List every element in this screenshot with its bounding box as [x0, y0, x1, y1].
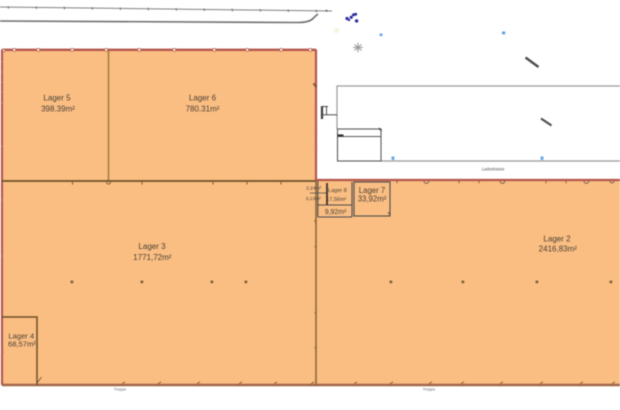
- svg-text:Lager 5: Lager 5: [43, 94, 71, 103]
- svg-text:68,57m²: 68,57m²: [8, 340, 36, 349]
- svg-text:Lager 3: Lager 3: [138, 242, 166, 251]
- svg-text:9,92m²: 9,92m²: [325, 209, 347, 216]
- svg-text:33,92m²: 33,92m²: [358, 194, 387, 203]
- svg-text:398.39m²: 398.39m²: [41, 105, 75, 114]
- svg-text:2,24m²: 2,24m²: [306, 185, 322, 191]
- svg-text:1771,72m²: 1771,72m²: [133, 253, 172, 262]
- svg-text:17,56m²: 17,56m²: [326, 197, 346, 203]
- svg-text:Lager 6: Lager 6: [189, 94, 217, 103]
- svg-text:3,13m²: 3,13m²: [306, 196, 322, 202]
- svg-text:Treppe: Treppe: [114, 387, 127, 392]
- svg-text:Lager 2: Lager 2: [543, 235, 571, 244]
- svg-text:2416,83m²: 2416,83m²: [539, 245, 578, 254]
- svg-text:Treppe: Treppe: [423, 387, 436, 392]
- svg-text:Lager 8: Lager 8: [328, 188, 347, 194]
- svg-text:780.31m²: 780.31m²: [186, 105, 220, 114]
- svg-text:Ladestrasse: Ladestrasse: [482, 167, 505, 172]
